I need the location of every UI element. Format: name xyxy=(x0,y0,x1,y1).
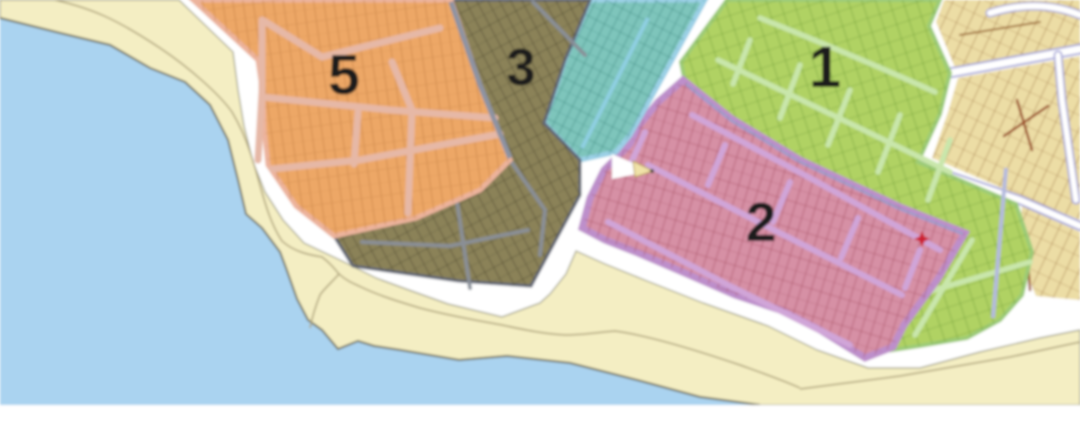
svg-text:5: 5 xyxy=(328,43,360,107)
svg-text:2: 2 xyxy=(746,191,777,253)
svg-text:3: 3 xyxy=(507,39,536,97)
svg-text:1: 1 xyxy=(809,35,841,100)
